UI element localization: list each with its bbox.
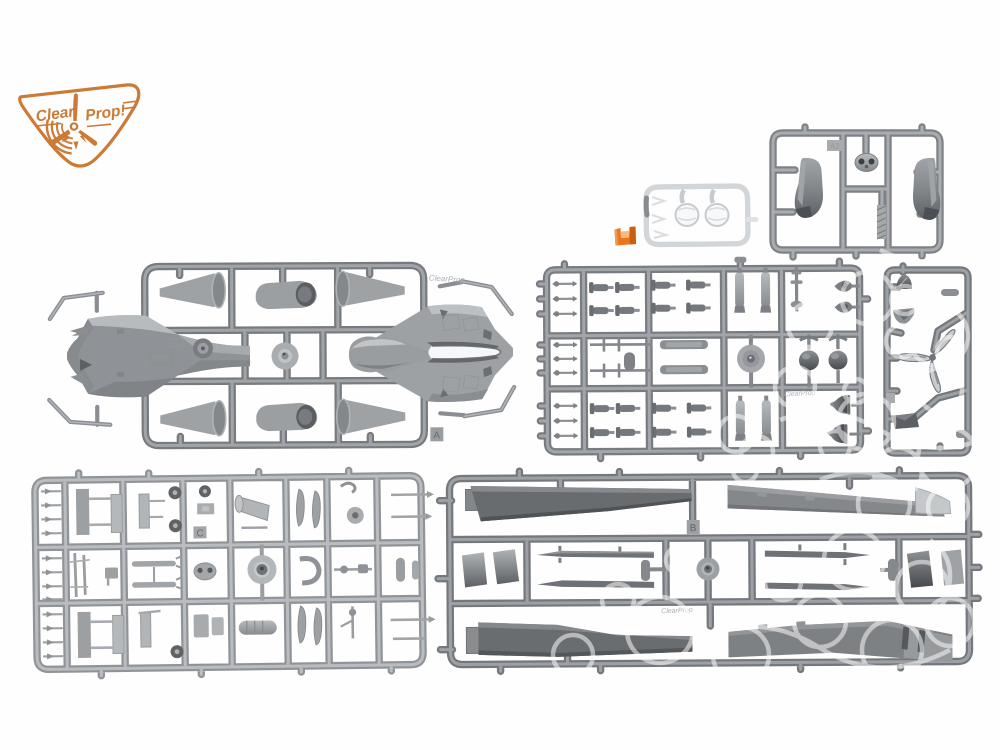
svg-text:C: C xyxy=(196,528,203,539)
svg-text:B: B xyxy=(690,523,697,534)
svg-text:A2: A2 xyxy=(830,142,840,151)
svg-text:A: A xyxy=(433,430,440,441)
